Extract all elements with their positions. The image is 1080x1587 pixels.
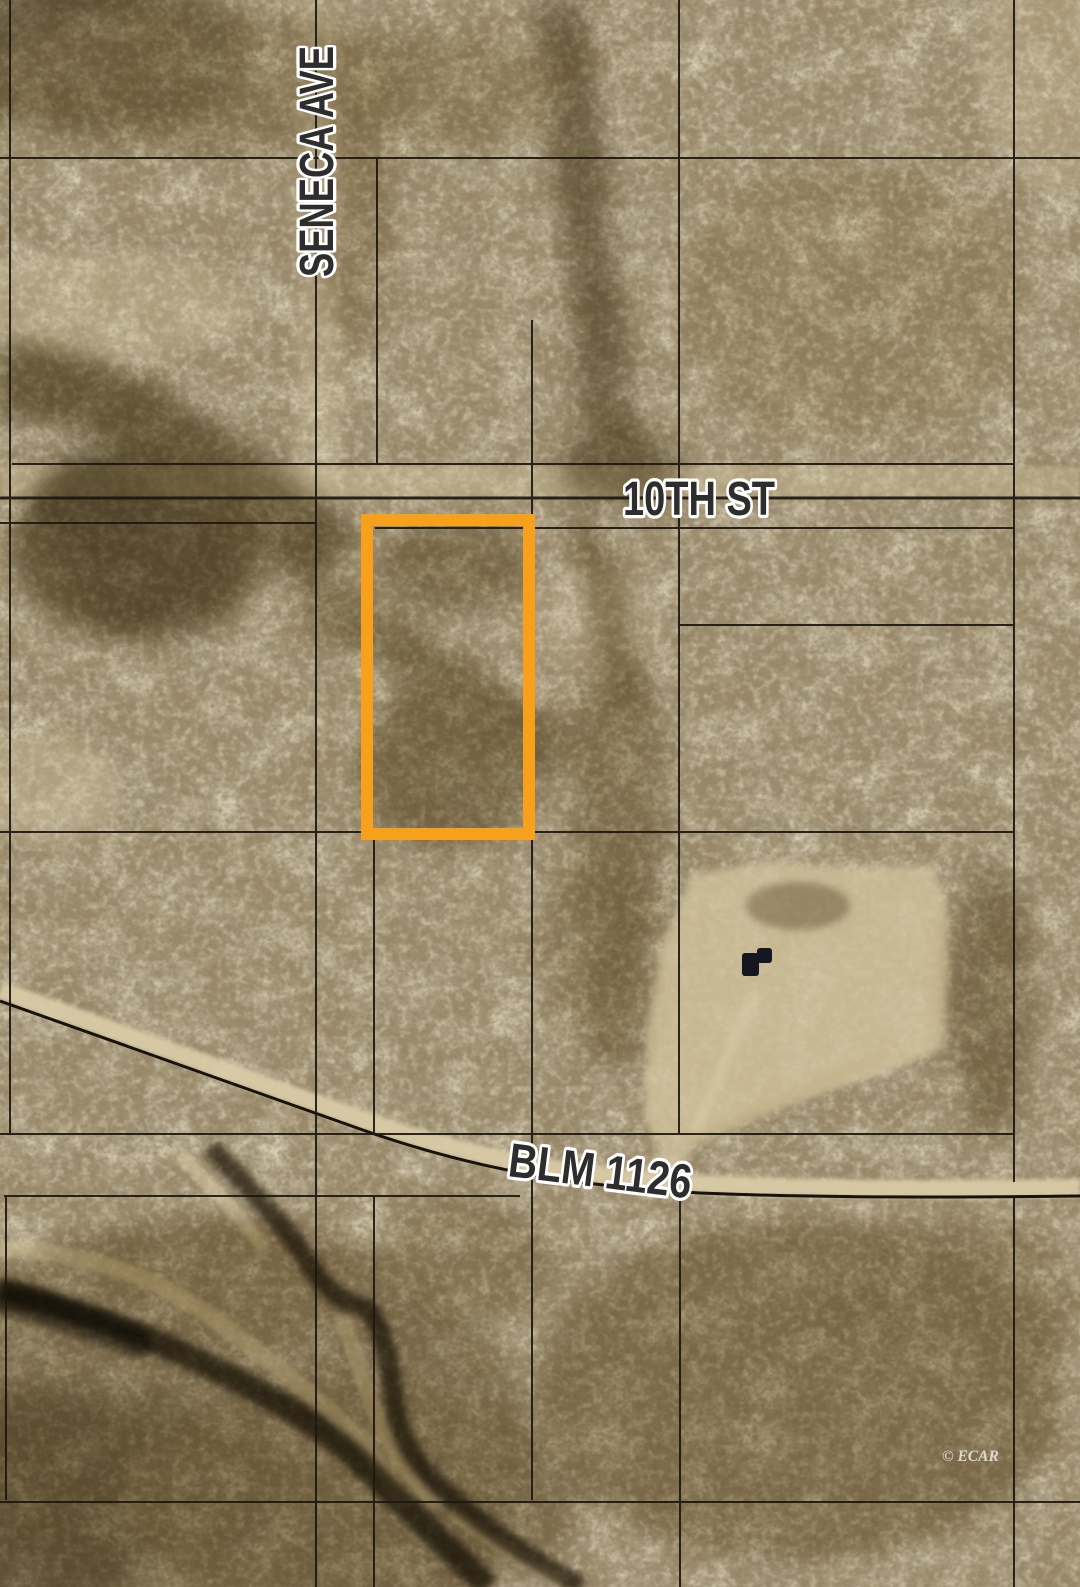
svg-text:SENECA AVE: SENECA AVE [291, 46, 344, 277]
svg-text:10TH ST: 10TH ST [623, 473, 775, 526]
svg-text:© ECAR: © ECAR [942, 1448, 999, 1465]
